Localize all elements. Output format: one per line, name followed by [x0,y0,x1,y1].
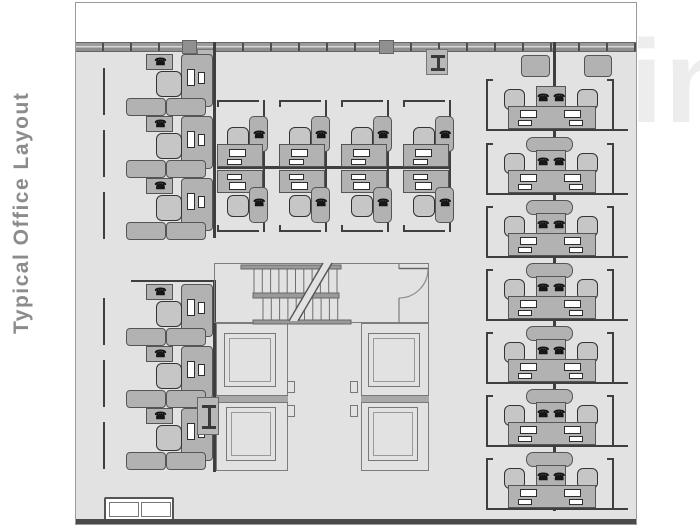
phone-icon: ☎ [315,128,327,143]
elevator-door [350,381,358,393]
partition-panel [607,269,614,271]
partition-panel [486,206,488,258]
keyboard-icon [564,426,581,434]
phone-icon: ☎ [147,347,174,363]
keyboard-icon [520,489,537,497]
monitor-icon [187,193,195,210]
partition-panel [612,256,628,258]
phone-icon: ☎ [537,344,549,359]
phone-icon: ☎ [553,407,565,422]
sofa-seat [166,452,206,470]
computer-icon [198,302,205,314]
keyboard-icon [569,120,583,126]
keyboard-icon [569,499,583,505]
partition-panel [279,225,281,232]
partition-panel [612,143,614,195]
keyboard-icon [518,499,532,505]
phone-icon: ☎ [253,128,265,143]
storage-cabinet [521,55,550,77]
keyboard-icon [518,120,532,126]
page-title: Typical Office Layout [10,4,36,334]
workstation-left: ☎ [103,116,214,178]
elevator-car-inner [229,338,271,382]
partition-panel [103,68,105,115]
elevator-car-inner [231,412,271,456]
phone-icon: ☎ [147,55,174,71]
ibeam-icon [427,50,449,76]
phone-icon: ☎ [553,344,565,359]
elevator-divider [216,395,288,403]
keyboard-icon [518,436,532,442]
partition-panel [103,360,105,407]
partition-panel [103,192,105,239]
phone-icon: ☎ [537,155,549,170]
phone-icon: ☎ [537,91,549,106]
phone-icon: ☎ [553,281,565,296]
partition-panel [486,143,493,145]
elevator-car-inner [373,412,413,456]
partition-panel [486,143,488,195]
partition-panel [486,458,493,460]
sofa-seat [141,502,171,517]
phone-icon: ☎ [553,155,565,170]
desk-return: ☎ [146,408,173,424]
phone-icon: ☎ [553,470,565,485]
keyboard-icon [564,489,581,497]
keyboard-icon [564,174,581,182]
partition-panel [403,230,445,232]
keyboard-icon [569,184,583,190]
partition-panel [607,395,614,397]
phone-icon: ☎ [439,128,451,143]
phone-icon: ☎ [253,196,265,211]
keyboard-icon [569,373,583,379]
partition-panel [612,319,628,321]
keyboard-icon [415,182,432,190]
sofa-seat [109,502,139,517]
partition-panel [486,508,614,510]
partition-panel [279,230,321,232]
phone-icon: ☎ [537,470,549,485]
desk-return: ☎ [146,116,173,132]
office-chair [227,195,249,217]
watermark-text: in [630,14,700,174]
phone-icon: ☎ [537,281,549,296]
partition-panel [486,395,488,447]
desk-return: ☎ [146,284,173,300]
partition-panel [217,100,259,102]
keyboard-icon [227,174,242,180]
keyboard-icon [518,247,532,253]
keyboard-icon [569,247,583,253]
phone-icon: ☎ [147,409,174,425]
keyboard-icon [518,310,532,316]
wall-column [182,40,197,54]
workstation-left: ☎ [103,178,214,240]
phone-icon: ☎ [553,91,565,106]
phone-icon: ☎ [537,407,549,422]
computer-icon [198,196,205,208]
keyboard-icon [353,182,370,190]
partition-panel [131,280,215,282]
office-chair [156,425,182,451]
office-chair [156,363,182,389]
keyboard-icon [227,159,242,165]
partition-panel [486,382,614,384]
ibeam-flange [202,426,216,429]
ibeam-web [437,58,440,68]
partition-panel [486,79,493,81]
keyboard-icon [564,363,581,371]
partition-panel [217,230,259,232]
computer-icon [198,134,205,146]
workstation-left: ☎ [103,54,214,116]
partition-panel [341,225,343,232]
ibeam-web [208,408,211,426]
phone-icon: ☎ [377,128,389,143]
computer-icon [198,72,205,84]
partition-panel [612,129,628,131]
keyboard-icon [564,110,581,118]
partition-panel [486,269,493,271]
keyboard-icon [353,149,370,157]
partition-panel [612,79,614,131]
partition-panel [607,206,614,208]
partition-panel [217,100,219,107]
partition-panel [612,193,628,195]
partition-panel [486,332,493,334]
keyboard-icon [564,300,581,308]
partition-panel [612,206,614,258]
partition-panel [612,458,614,510]
keyboard-icon [518,184,532,190]
partition-panel [612,332,614,384]
partition-panel [612,395,614,447]
office-chair [351,195,373,217]
keyboard-icon [569,310,583,316]
partition-panel [612,382,628,384]
stairwell [214,263,429,323]
partition-panel [403,100,405,107]
partition-panel [612,269,614,321]
monitor-icon [187,131,195,148]
partition-panel [217,225,219,232]
keyboard-icon [520,110,537,118]
exterior-wall-bottom [76,519,636,524]
partition-panel [486,193,614,195]
wall-column [426,49,448,75]
phone-icon: ☎ [553,218,565,233]
ibeam-flange [431,68,445,71]
exterior-strip [76,3,636,42]
phone-icon: ☎ [315,196,327,211]
sofa-seat [126,328,166,346]
partition-panel [486,319,614,321]
elevator-car [368,407,418,461]
elevator-car [224,333,276,387]
partition-panel [341,230,383,232]
partition-panel [607,143,614,145]
desk-return: ☎ [146,178,173,194]
sofa-seat [126,98,166,116]
office-chair [156,195,182,221]
monitor-icon [187,69,195,86]
storage-cabinet [584,55,612,77]
keyboard-icon [518,373,532,379]
partition-panel [486,129,614,131]
partition-panel [341,100,343,107]
keyboard-icon [520,174,537,182]
keyboard-icon [291,149,308,157]
partition-panel [279,100,281,107]
phone-icon: ☎ [439,196,451,211]
phone-icon: ☎ [377,196,389,211]
sofa-seat [126,160,166,178]
monitor-icon [187,361,195,378]
keyboard-icon [415,149,432,157]
elevator-divider [361,395,429,403]
keyboard-icon [413,174,428,180]
partition-panel [486,206,493,208]
sofa [104,497,174,521]
office-chair [156,301,182,327]
partition-panel [607,458,614,460]
keyboard-icon [520,426,537,434]
partition-panel [486,256,614,258]
partition-panel [607,79,614,81]
sofa-seat [126,452,166,470]
keyboard-icon [413,159,428,165]
phone-icon: ☎ [537,218,549,233]
partition-panel [612,508,628,510]
partition-panel [486,395,493,397]
partition-panel [486,445,614,447]
wall-column [379,40,394,54]
partition-panel [279,100,321,102]
partition-panel [103,422,105,469]
keyboard-icon [229,182,246,190]
partition-panel [607,332,614,334]
computer-icon [198,364,205,376]
floor-plan: ☎☎☎☎☎☎☎☎☎☎☎☎☎☎☎☎☎☎☎☎☎☎☎☎☎☎☎☎ [75,2,637,525]
partition-panel [403,225,405,232]
office-chair [289,195,311,217]
sofa-seat [166,222,206,240]
partition-panel [486,458,488,510]
window-wall-band [76,42,636,52]
partition-panel [403,100,445,102]
phone-icon: ☎ [147,285,174,301]
keyboard-icon [351,159,366,165]
keyboard-icon [520,363,537,371]
sofa-seat [166,328,206,346]
elevator-car [368,333,420,387]
sofa-seat [166,160,206,178]
office-chair [156,133,182,159]
ibeam-column [197,397,219,435]
partition-panel [341,100,383,102]
partition-panel [486,269,488,321]
monitor-icon [187,423,195,440]
sofa-seat [166,98,206,116]
workstation-left: ☎ [103,284,214,346]
keyboard-icon [229,149,246,157]
partition-panel [103,130,105,177]
elevator-door [287,381,295,393]
keyboard-icon [564,237,581,245]
keyboard-icon [569,436,583,442]
keyboard-icon [520,237,537,245]
partition-panel [486,332,488,384]
sofa-seat [126,390,166,408]
keyboard-icon [289,159,304,165]
elevator-door [287,405,295,417]
desk-return: ☎ [146,54,173,70]
desk-return: ☎ [146,346,173,362]
office-chair [413,195,435,217]
phone-icon: ☎ [147,117,174,133]
partition-panel [103,298,105,345]
elevator-car-inner [373,338,415,382]
keyboard-icon [291,182,308,190]
phone-icon: ☎ [147,179,174,195]
elevator-door [350,405,358,417]
ibeam-icon [198,398,220,436]
office-chair [156,71,182,97]
sofa-seat [126,222,166,240]
keyboard-icon [289,174,304,180]
keyboard-icon [351,174,366,180]
monitor-icon [187,299,195,316]
keyboard-icon [520,300,537,308]
elevator-car [226,407,276,461]
partition-panel [486,79,488,131]
partition-panel [612,445,628,447]
